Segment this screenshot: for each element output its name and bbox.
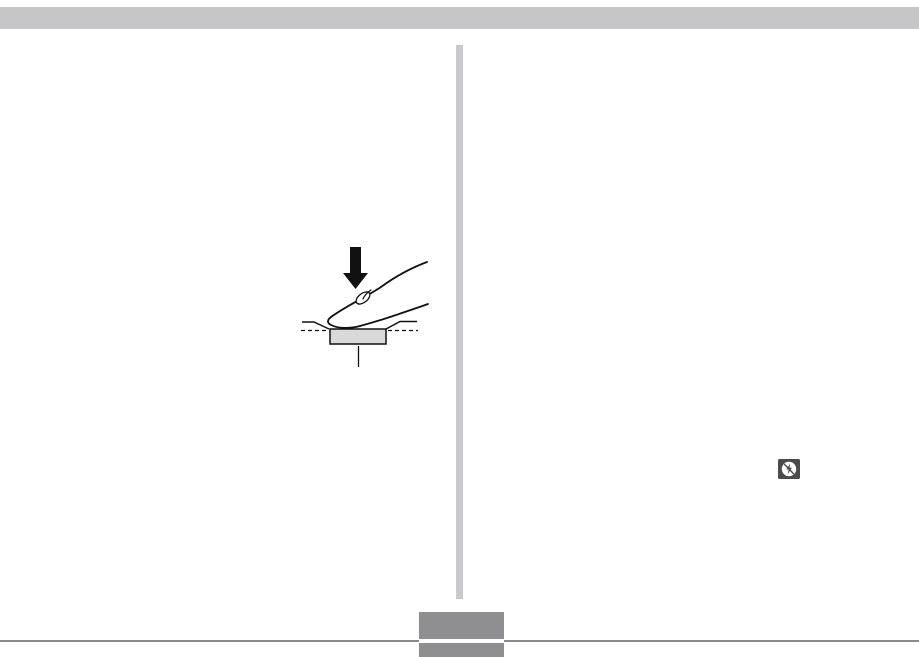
manual-page [0, 0, 919, 657]
camera-body-left-line [302, 322, 329, 329]
camera-body-right-line [386, 322, 417, 330]
finger-outline [328, 262, 427, 328]
shutter-press-illustration [301, 243, 436, 368]
hand-lower-line [360, 304, 428, 326]
column-divider [456, 45, 463, 599]
flash-off-icon [778, 459, 800, 479]
page-number-box [419, 612, 504, 657]
shutter-button [330, 329, 386, 344]
down-arrow-icon [343, 247, 368, 289]
header-bar [0, 7, 919, 29]
page-number-box-stripe [419, 639, 504, 643]
